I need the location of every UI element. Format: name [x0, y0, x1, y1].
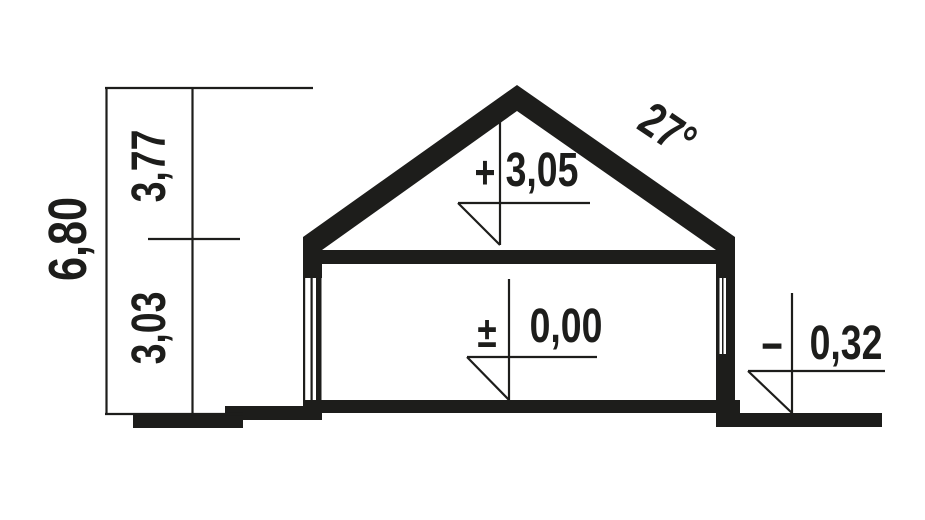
left-wall-inner-face: [316, 278, 322, 402]
dim-upper-storey-height: 3,77: [126, 130, 174, 203]
floor-level-sign: ±: [477, 311, 496, 355]
right-wall-glazing-stripe-2: [724, 278, 727, 354]
terrain-level-value: 0,32: [810, 320, 883, 368]
dim-total-height: 6,80: [41, 197, 95, 281]
ceiling-slab: [317, 250, 717, 264]
left-wall-outer-line: [303, 278, 305, 402]
left-wall-middle-line: [311, 278, 313, 402]
floor-level-value: 0,00: [530, 303, 603, 351]
right-wall-glazing-stripe-1: [720, 278, 723, 354]
dim-ground-storey-height: 3,03: [126, 292, 174, 365]
section-linework: [0, 0, 925, 520]
terrain-right: [735, 413, 882, 427]
section-drawing: 6,80 3,77 3,03 27° + 3,05 ± 0,00 − 0,32: [0, 0, 925, 520]
floor-slab: [303, 400, 740, 413]
terrain-level-sign: −: [761, 323, 783, 371]
attic-level-value: 3,05: [506, 147, 579, 195]
attic-level-sign: +: [475, 149, 496, 195]
terrain-left: [133, 414, 243, 428]
